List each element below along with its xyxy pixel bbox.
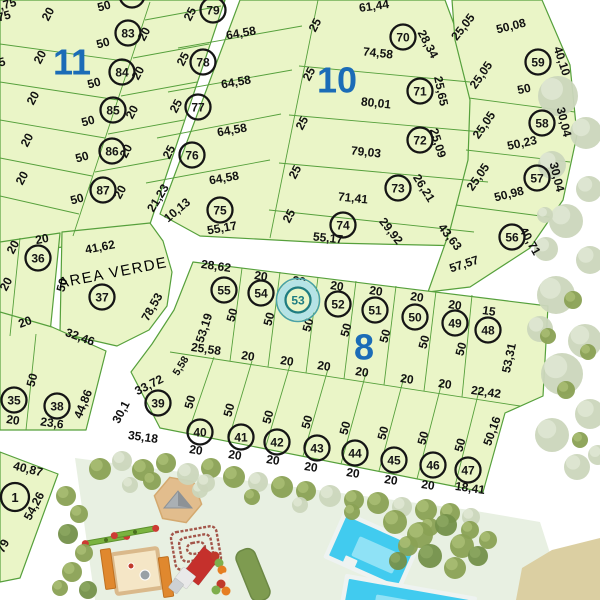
dimension-label: 20 xyxy=(345,465,360,481)
lot-number: 86 xyxy=(105,145,119,159)
tree-highlight xyxy=(452,535,465,548)
tree-highlight xyxy=(529,317,543,331)
tree xyxy=(143,472,161,490)
flower-bed xyxy=(222,587,231,596)
lot-number: 46 xyxy=(426,459,440,473)
tree-highlight xyxy=(409,523,423,537)
tree-highlight xyxy=(345,505,354,514)
tree-highlight xyxy=(541,329,550,338)
tree xyxy=(292,497,308,513)
tree xyxy=(52,580,68,596)
tree-highlight xyxy=(225,467,237,479)
lot-number: 82 xyxy=(125,0,139,3)
block-label-10: 10 xyxy=(317,60,357,101)
lot-number: 47 xyxy=(461,464,475,478)
tree-highlight xyxy=(179,464,191,476)
tree-highlight xyxy=(321,486,333,498)
lot-number: 87 xyxy=(96,184,110,198)
lot-number: 58 xyxy=(535,117,549,131)
lot-number: 74 xyxy=(336,219,350,233)
tree-highlight xyxy=(400,537,411,548)
plat-map-canvas: ,757555050505050502020202020202020202025… xyxy=(0,0,600,600)
tree-highlight xyxy=(91,459,103,471)
tree-highlight xyxy=(470,547,481,558)
dimension-label: 20 xyxy=(420,477,435,493)
dimension-label: 20 xyxy=(383,472,398,488)
tree-highlight xyxy=(552,206,571,225)
lot-number: 39 xyxy=(151,397,165,411)
tree-highlight xyxy=(573,433,582,442)
lot-number: 53 xyxy=(291,294,305,308)
dimension-label: 20 xyxy=(240,348,255,364)
tree-highlight xyxy=(394,498,405,509)
tree xyxy=(535,418,569,452)
tree-highlight xyxy=(578,247,593,262)
tree-highlight xyxy=(203,459,214,470)
dimension-label: 20 xyxy=(409,289,424,305)
lot-number: 45 xyxy=(387,454,401,468)
lot-number: 56 xyxy=(505,231,519,245)
lot-number: 71 xyxy=(413,85,427,99)
tree-highlight xyxy=(538,420,557,439)
tree-highlight xyxy=(245,490,254,499)
tree-highlight xyxy=(544,355,567,378)
tree xyxy=(244,489,260,505)
sandbox-toy xyxy=(140,570,150,580)
tree xyxy=(580,344,596,360)
lot-number: 76 xyxy=(185,149,199,163)
lot-number: 72 xyxy=(413,134,427,148)
lot-number: 36 xyxy=(31,252,45,266)
tree-highlight xyxy=(134,460,146,472)
lot-number: 70 xyxy=(396,31,410,45)
plat-map: ,757555050505050502020202020202020202025… xyxy=(0,0,600,600)
tree-highlight xyxy=(578,177,592,191)
tree-highlight xyxy=(53,581,62,590)
tree-highlight xyxy=(80,582,90,592)
lot-number: 44 xyxy=(348,447,362,461)
lot-number: 79 xyxy=(206,4,220,18)
lot-number: 37 xyxy=(95,291,109,305)
tree xyxy=(344,504,360,520)
lot-number: 51 xyxy=(368,304,382,318)
tree-highlight xyxy=(76,545,86,555)
tree xyxy=(70,505,88,523)
tree xyxy=(564,291,582,309)
tree-highlight xyxy=(462,522,472,532)
lot-number: 41 xyxy=(234,431,248,445)
tree xyxy=(389,552,407,570)
tree-highlight xyxy=(158,454,169,465)
tree xyxy=(461,521,479,539)
tree-highlight xyxy=(369,493,381,505)
tree xyxy=(537,207,553,223)
tree xyxy=(468,546,488,566)
tree xyxy=(89,458,111,480)
tree xyxy=(367,492,389,514)
tree-highlight xyxy=(273,477,285,489)
tree xyxy=(549,204,583,238)
lot-number: 77 xyxy=(191,101,205,115)
tree-highlight xyxy=(60,525,71,536)
lot-number: 38 xyxy=(50,400,64,414)
tree-highlight xyxy=(58,487,69,498)
tree-highlight xyxy=(581,345,590,354)
lot-number: 73 xyxy=(391,182,405,196)
lot-number: 78 xyxy=(196,56,210,70)
dimension-label: 20 xyxy=(5,412,20,428)
tree-highlight xyxy=(565,292,575,302)
tree xyxy=(564,454,590,480)
tree-highlight xyxy=(437,515,449,527)
dimension-label: 20 xyxy=(399,371,414,387)
tree xyxy=(271,476,293,498)
tree-highlight xyxy=(390,553,400,563)
tree-highlight xyxy=(346,491,357,502)
tree-highlight xyxy=(417,500,429,512)
lot-number: 75 xyxy=(213,204,227,218)
tree-highlight xyxy=(420,545,433,558)
tree xyxy=(197,474,215,492)
tree-highlight xyxy=(577,401,594,418)
tree-highlight xyxy=(293,498,302,507)
lot-number: 85 xyxy=(106,104,120,118)
tree xyxy=(418,544,442,568)
lot-number: 84 xyxy=(115,66,129,80)
tree-highlight xyxy=(114,452,125,463)
tree-highlight xyxy=(463,509,473,519)
tree xyxy=(540,328,556,344)
lot-number: 49 xyxy=(448,317,462,331)
lot-number: 52 xyxy=(331,298,345,312)
tree xyxy=(56,486,76,506)
lot-number: 50 xyxy=(408,311,422,325)
dimension-label: 20 xyxy=(437,376,452,392)
seesaw-pivot xyxy=(104,538,108,542)
lot-number: 43 xyxy=(310,442,324,456)
tree xyxy=(572,432,588,448)
tree xyxy=(62,562,82,582)
tree-highlight xyxy=(64,563,75,574)
lot-number: 1 xyxy=(11,490,18,505)
tree xyxy=(319,485,341,507)
tree-highlight xyxy=(590,446,600,457)
tree xyxy=(75,544,93,562)
seesaw-seat xyxy=(111,532,118,539)
tree xyxy=(435,514,457,536)
tree-highlight xyxy=(480,532,490,542)
lot-number: 42 xyxy=(270,436,284,450)
seesaw-pivot xyxy=(133,530,137,534)
tree-highlight xyxy=(71,506,81,516)
block-label-11: 11 xyxy=(53,42,91,83)
tree xyxy=(156,453,176,473)
tree-highlight xyxy=(442,504,453,515)
sandbox-toy xyxy=(128,563,134,569)
tree-highlight xyxy=(538,208,547,217)
lot-number: 57 xyxy=(530,172,544,186)
lot-number: 48 xyxy=(481,324,495,338)
flower-bed xyxy=(212,586,221,595)
tree-highlight xyxy=(566,455,580,469)
sandbox xyxy=(111,548,162,594)
tree xyxy=(79,581,97,599)
tree-highlight xyxy=(446,558,458,570)
tree-highlight xyxy=(385,511,398,524)
lot-number: 83 xyxy=(121,27,135,41)
tree xyxy=(557,381,575,399)
tree xyxy=(383,510,407,534)
tree-highlight xyxy=(298,482,309,493)
tree-highlight xyxy=(123,478,132,487)
lot-number: 54 xyxy=(254,287,268,301)
tree-highlight xyxy=(571,326,590,345)
tree-highlight xyxy=(540,278,561,299)
tree-highlight xyxy=(144,473,154,483)
tree xyxy=(223,466,245,488)
block-label-8: 8 xyxy=(354,327,374,368)
tree-highlight xyxy=(541,78,563,100)
lot-number: 59 xyxy=(531,56,545,70)
lot-number: 35 xyxy=(7,394,21,408)
tree xyxy=(112,451,132,471)
tree xyxy=(58,524,78,544)
tree xyxy=(415,499,437,521)
tree xyxy=(122,477,138,493)
tree-highlight xyxy=(558,382,568,392)
tree-highlight xyxy=(198,475,208,485)
tree-highlight xyxy=(250,473,261,484)
lot-number: 40 xyxy=(193,426,207,440)
tree xyxy=(479,531,497,549)
seesaw-seat xyxy=(152,525,159,532)
lot-number: 55 xyxy=(217,284,231,298)
tree xyxy=(248,472,268,492)
dimension-label: 20 xyxy=(316,358,331,374)
dimension-label: 20 xyxy=(279,353,294,369)
lot-marker-53[interactable]: 53 xyxy=(277,279,320,322)
tree xyxy=(444,557,466,579)
tree xyxy=(177,463,199,485)
